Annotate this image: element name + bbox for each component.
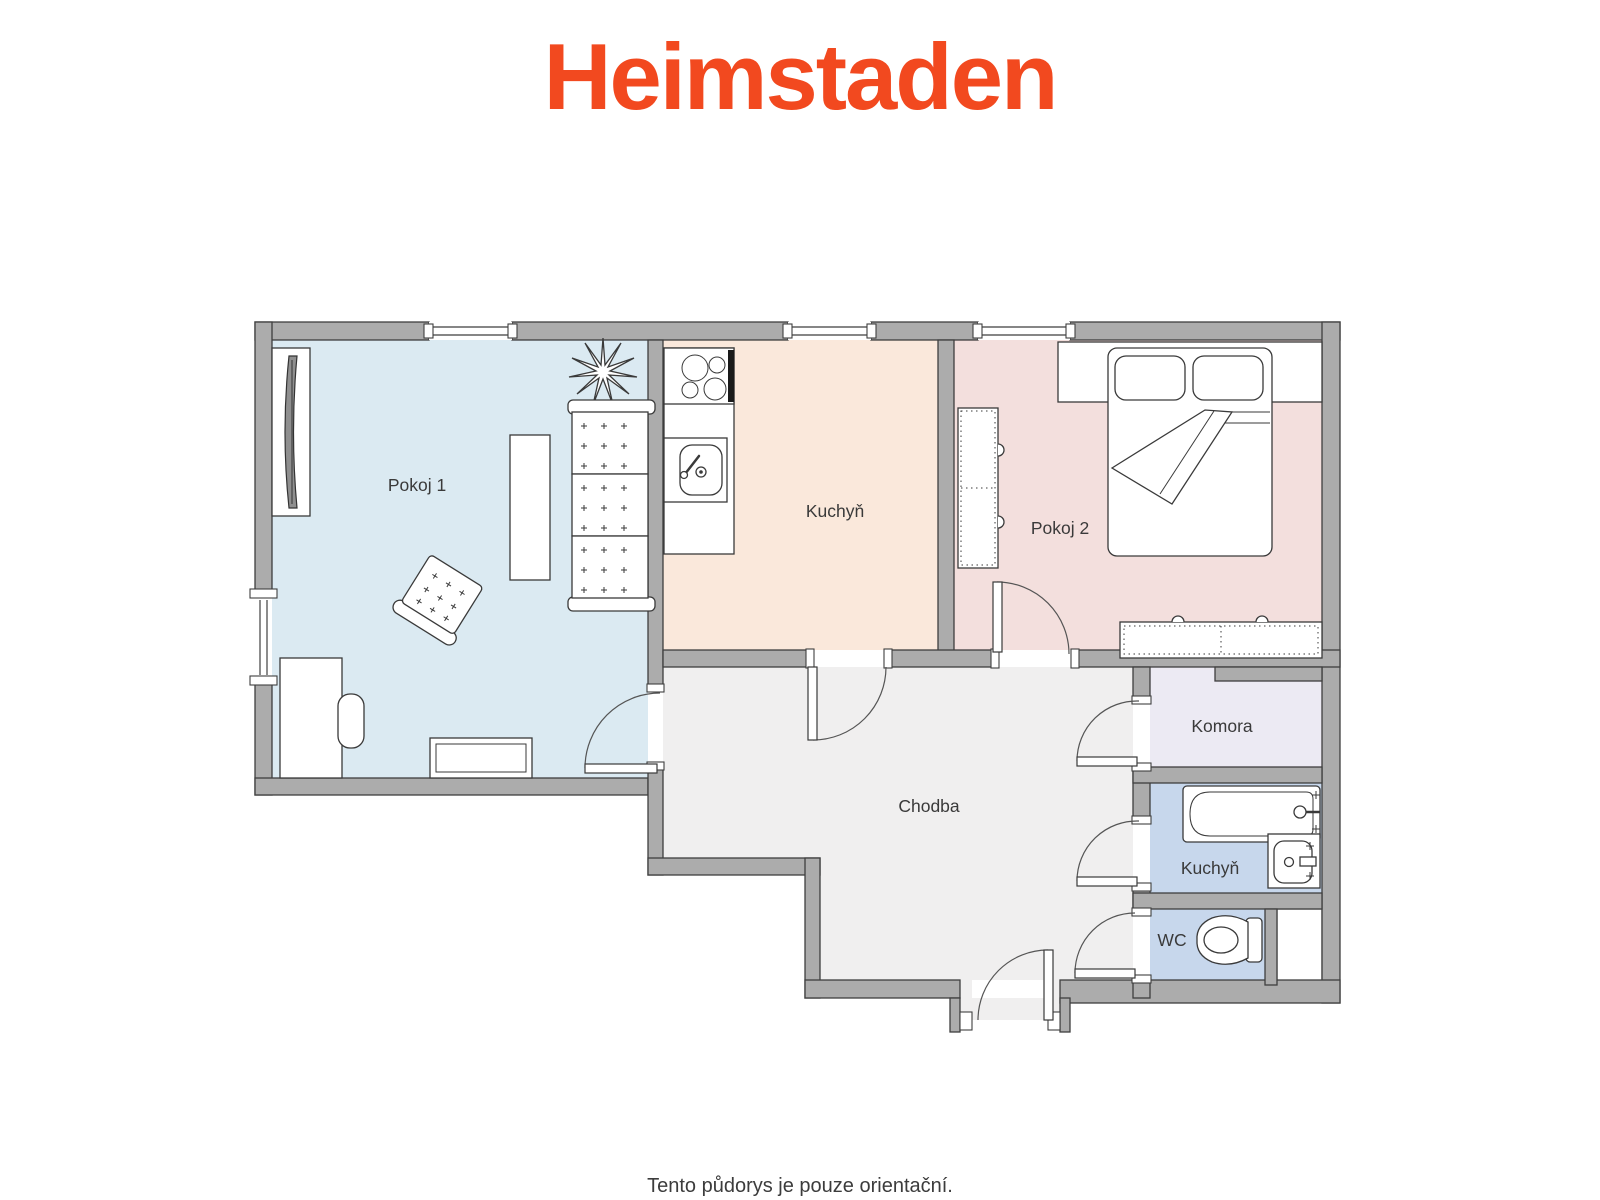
bench-icon [430,738,532,778]
toilet-icon [1197,916,1262,965]
desk-chair-icon [338,694,364,748]
kuchyn-furniture [664,348,734,554]
label-chodba: Chodba [898,796,960,816]
window-pokoj2-top [973,322,1075,340]
label-wc: WC [1157,930,1186,950]
room-chodba [663,667,1133,1020]
pillow-icon [1115,356,1185,400]
disclaimer-text: Tento půdorys je pouze orientační. [0,1174,1600,1198]
label-pokoj2: Pokoj 2 [1031,518,1089,538]
tv-icon [272,348,310,516]
kitchen-sink-icon [664,438,727,502]
shaft [1277,909,1322,985]
coffee-table-icon [510,435,550,580]
label-komora: Komora [1191,716,1253,736]
label-kuchyn: Kuchyň [806,501,864,521]
stove-icon [664,348,734,404]
window-kuchyn-top [783,322,876,340]
page: Heimstaden [0,0,1600,1200]
pillow-icon [1193,356,1263,400]
sofa-icon [568,400,655,611]
bed-icon [1108,348,1272,556]
label-koupelna: Kuchyň [1181,858,1239,878]
washbasin-icon [1268,834,1320,888]
window-pokoj1-top [424,322,517,340]
dresser-icon [1120,616,1322,658]
wardrobe-icon [958,408,1004,568]
floorplan-svg: Pokoj 1 Kuchyň Pokoj 2 Chodba Komora Kuc… [0,0,1600,1200]
label-pokoj1: Pokoj 1 [388,475,446,495]
